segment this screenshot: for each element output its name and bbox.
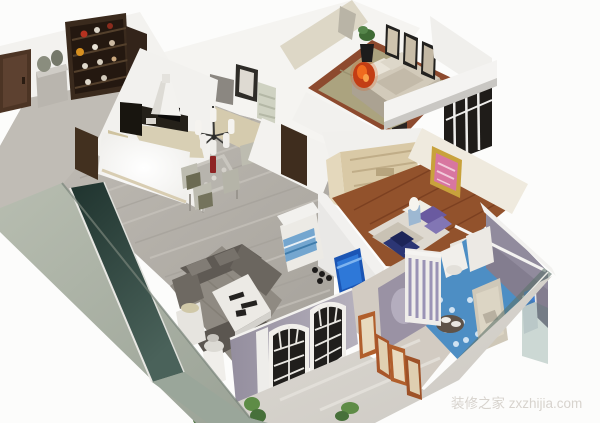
svg-text:装修之家 zxzhijia.com: 装修之家 zxzhijia.com [451, 395, 582, 411]
